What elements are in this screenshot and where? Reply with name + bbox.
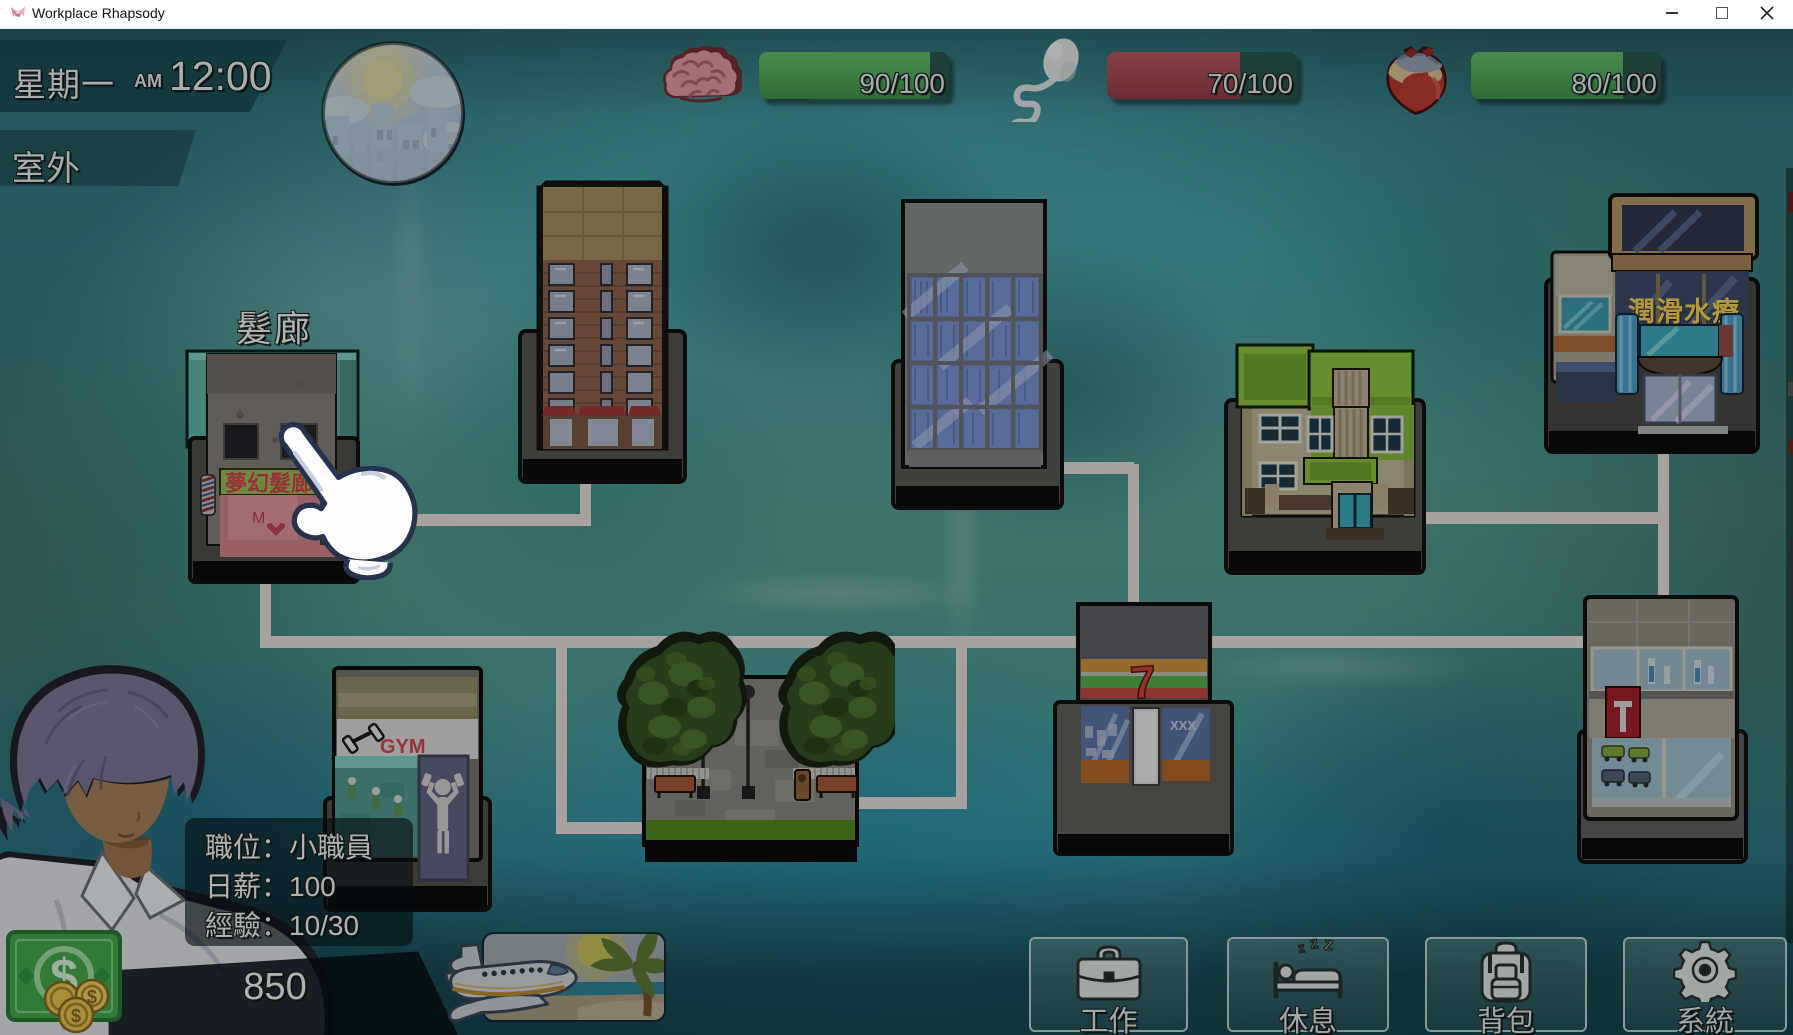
svg-text:$: $ — [87, 987, 97, 1007]
svg-text:XXX: XXX — [1170, 718, 1196, 733]
svg-text:z: z — [1323, 938, 1334, 954]
svg-text:z: z — [1296, 939, 1306, 956]
svg-text:z: z — [1309, 938, 1319, 953]
svg-text:7: 7 — [1129, 655, 1158, 709]
svg-text:$: $ — [71, 1006, 81, 1026]
